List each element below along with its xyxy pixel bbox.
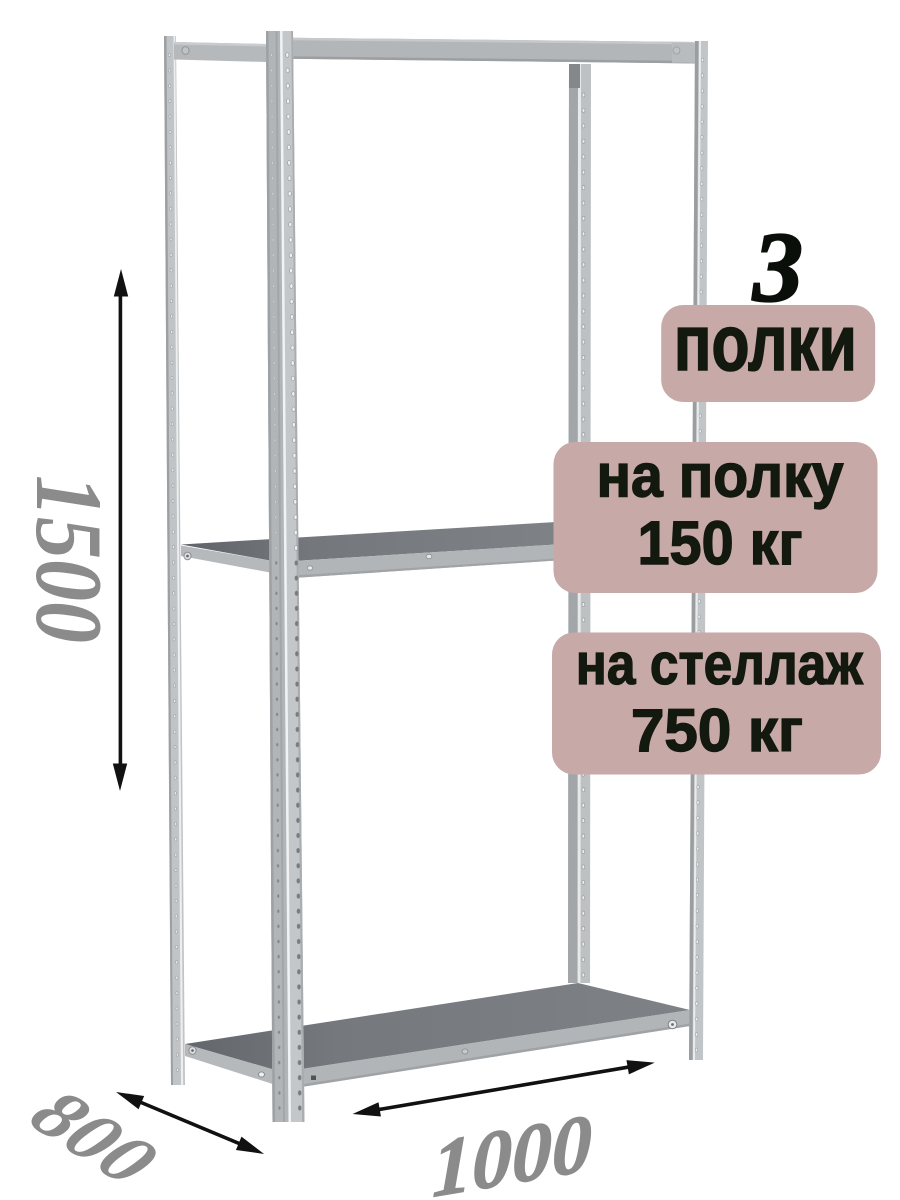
- svg-text:750 кг: 750 кг: [631, 697, 803, 764]
- svg-text:на полку: на полку: [597, 442, 844, 511]
- svg-text:на стеллаж: на стеллаж: [576, 632, 864, 697]
- svg-text:150 кг: 150 кг: [638, 509, 803, 578]
- svg-text:3: 3: [752, 212, 803, 323]
- svg-text:1500: 1500: [16, 475, 122, 643]
